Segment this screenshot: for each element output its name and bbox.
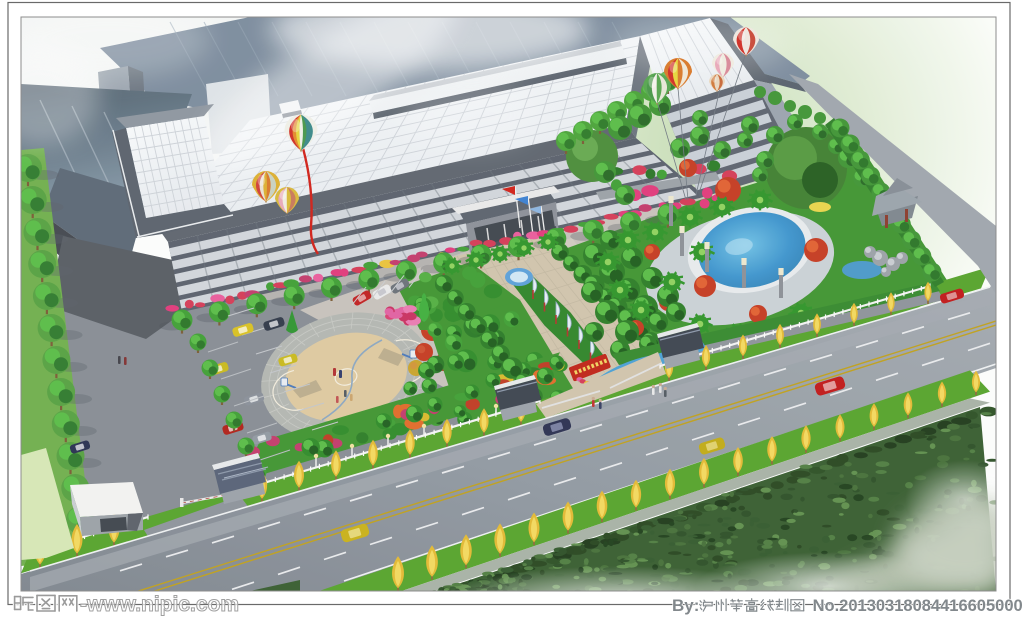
svg-text:-www.nipic.com: -www.nipic.com <box>80 593 239 616</box>
svg-text:No.20130318084416605000: No.20130318084416605000 <box>808 597 1023 615</box>
svg-text:By:: By: <box>672 596 699 615</box>
